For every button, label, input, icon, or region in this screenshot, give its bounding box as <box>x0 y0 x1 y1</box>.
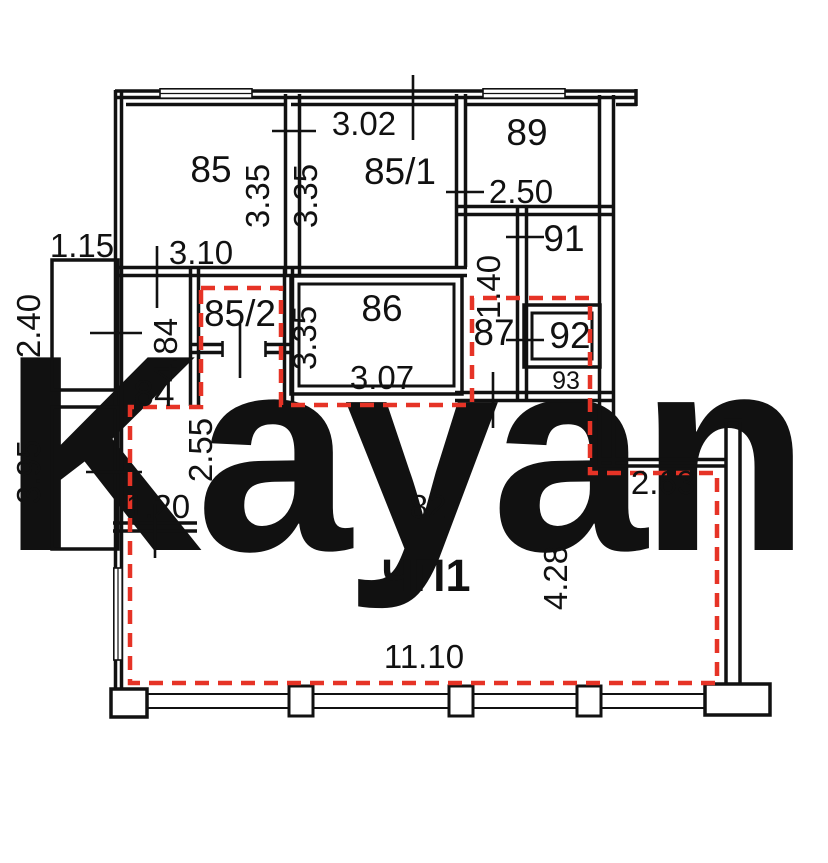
room-label-91: 91 <box>543 218 584 259</box>
room-label-85-1: 85/1 <box>364 151 436 192</box>
pillar-3 <box>577 686 601 716</box>
room-label-85-2: 85/2 <box>204 293 276 334</box>
room-label-82: 82 <box>410 488 447 525</box>
unit-label-chp1: ЧП1 <box>382 550 471 601</box>
dim-4-84: 4.84 <box>147 318 184 382</box>
pillar-1 <box>289 686 313 716</box>
floor-plan-image: Kayan <box>0 0 828 863</box>
dim-3-35-r851: 3.35 <box>287 164 324 228</box>
room-label-85: 85 <box>190 149 231 190</box>
dim-1-40: 1.40 <box>470 255 507 319</box>
corner-block-left <box>111 689 147 717</box>
room-label-93: 93 <box>552 367 580 395</box>
room-label-92: 92 <box>549 315 590 356</box>
dim-1-15: 1.15 <box>50 227 114 264</box>
pillar-2 <box>449 686 473 716</box>
bottom-window-band <box>147 694 705 708</box>
dim-2-40: 2.40 <box>10 294 47 358</box>
dim-11-10: 11.10 <box>384 638 464 675</box>
corner-block-right <box>705 684 770 715</box>
room-label-86: 86 <box>361 288 402 329</box>
dim-3-95: 3.95 <box>10 440 47 504</box>
dim-3-02: 3.02 <box>332 105 396 142</box>
dim-3-35-r85: 3.35 <box>239 164 276 228</box>
dim-2-63: 2.63 <box>631 464 695 501</box>
room-label-89: 89 <box>506 112 547 153</box>
floor-plan-svg: Kayan <box>0 0 828 863</box>
bottom-pillars <box>111 684 770 717</box>
dim-3-07: 3.07 <box>350 359 414 396</box>
dim-2-50: 2.50 <box>489 173 553 210</box>
dim-4-28: 4.28 <box>537 546 574 610</box>
dim-3-35-r86: 3.35 <box>286 306 323 370</box>
dim-3-10: 3.10 <box>169 234 233 271</box>
dim-2-55: 2.55 <box>182 418 219 482</box>
dim-1-20: 1.20 <box>126 488 190 525</box>
